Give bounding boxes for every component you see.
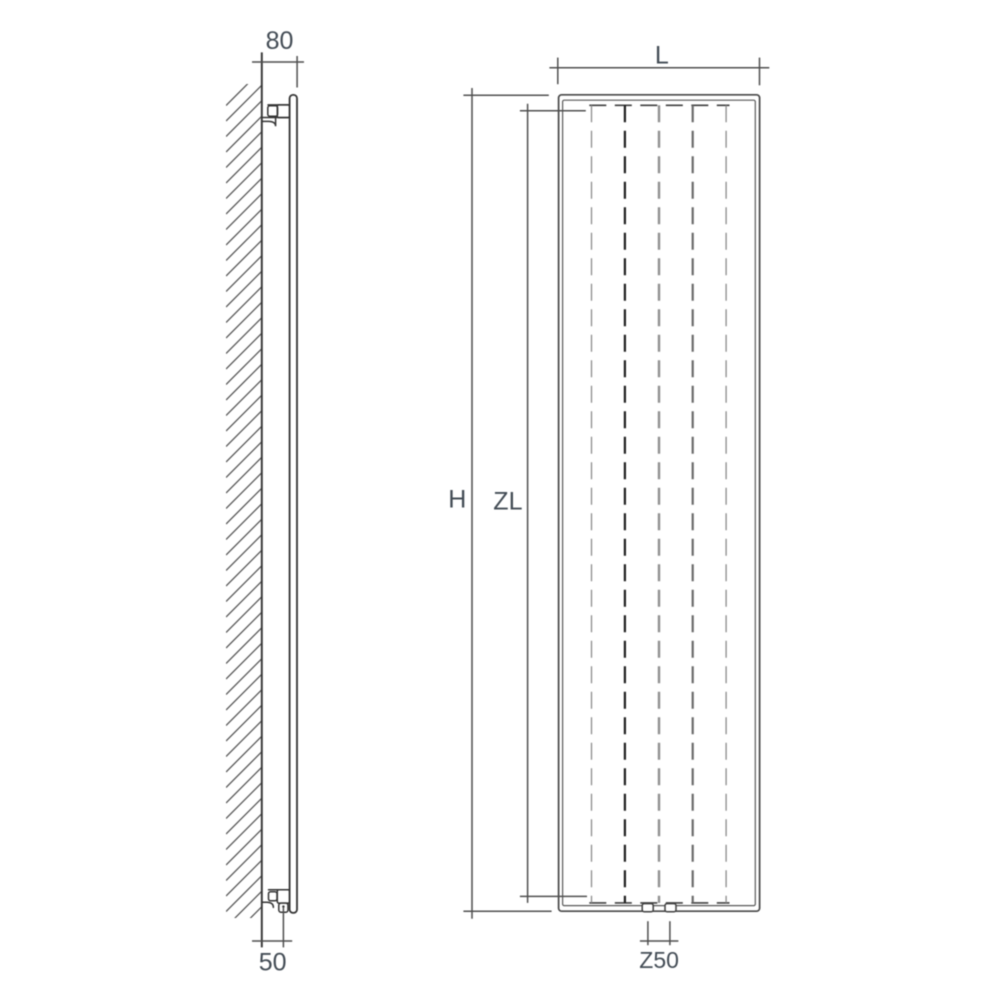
svg-text:Z50: Z50 [639,947,679,973]
svg-text:H: H [448,486,466,514]
svg-text:L: L [655,41,669,69]
svg-text:80: 80 [266,27,294,55]
svg-text:50: 50 [259,949,287,977]
svg-text:ZL: ZL [493,487,522,515]
